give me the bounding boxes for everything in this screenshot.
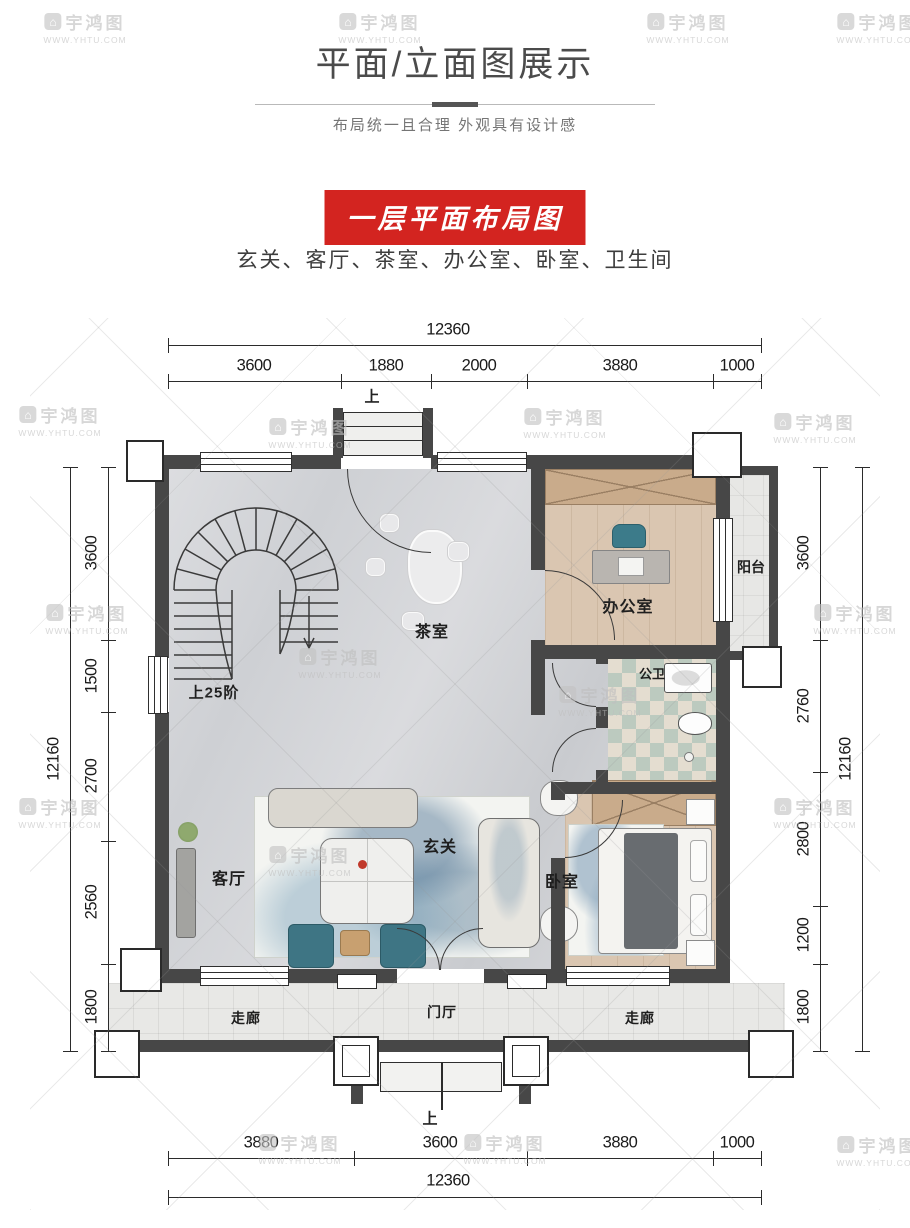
house-logo-icon: ⌂ — [464, 1134, 481, 1151]
page-subtitle: 布局统一且合理 外观具有设计感 — [0, 114, 910, 135]
dim-tick — [761, 374, 762, 389]
watermark-brand: 宇鸿图 — [545, 404, 605, 429]
pier-balcony-bottom — [742, 646, 782, 688]
house-logo-icon: ⌂ — [46, 604, 63, 621]
label-living-room: 客厅 — [212, 865, 246, 889]
house-logo-icon: ⌂ — [647, 13, 664, 30]
dim-tick — [63, 467, 78, 468]
house-logo-icon: ⌂ — [774, 798, 791, 815]
wall-bath-post-3 — [596, 770, 608, 782]
dim-tick — [354, 1151, 355, 1166]
dim-left-seg-2: 2700 — [83, 759, 102, 794]
coffee-table — [320, 838, 414, 924]
dim-tick — [813, 906, 828, 907]
wall-bath-post-2 — [596, 707, 608, 728]
tv-console — [176, 848, 196, 938]
dim-tick — [761, 1190, 762, 1205]
wall-left-lower — [155, 712, 169, 983]
wall-office-bottom — [531, 645, 730, 659]
pilaster-left — [337, 974, 377, 989]
dim-top-seg-0: 3600 — [237, 357, 272, 376]
label-bedroom: 卧室 — [545, 868, 579, 892]
dim-right-seg-1: 2760 — [795, 689, 814, 724]
dim-tick — [168, 374, 169, 389]
watermark: ⌂宇鸿图WWW.YHTU.COM — [18, 402, 101, 438]
dim-bottom-total: 12360 — [426, 1172, 469, 1191]
watermark: ⌂宇鸿图WWW.YHTU.COM — [836, 1132, 910, 1168]
dim-right-seg-4: 1800 — [795, 990, 814, 1025]
dim-tick — [813, 1051, 828, 1052]
dim-right-seg-3: 1200 — [795, 918, 814, 953]
watermark-brand: 宇鸿图 — [65, 9, 125, 34]
label-office: 办公室 — [602, 593, 653, 617]
dim-right-total: 12160 — [837, 737, 856, 780]
dim-bottom-seg-3: 1000 — [720, 1134, 755, 1153]
dim-tick — [101, 1051, 116, 1052]
bath-drain — [684, 752, 694, 762]
watermark: ⌂宇鸿图WWW.YHTU.COM — [463, 1130, 546, 1166]
dim-bottom-seg-2: 3880 — [603, 1134, 638, 1153]
dim-top-total-line — [168, 345, 761, 346]
dim-tick — [855, 1051, 870, 1052]
window-stairs-left — [148, 656, 168, 714]
wall-bath-bottom — [551, 782, 730, 794]
bed-blanket — [624, 833, 678, 949]
dim-bottom-total-line — [168, 1197, 761, 1198]
dim-left-seg-3: 2560 — [83, 885, 102, 920]
page-title: 平面/立面图展示 — [0, 36, 910, 87]
house-logo-icon: ⌂ — [814, 604, 831, 621]
watermark-brand: 宇鸿图 — [795, 794, 855, 819]
dim-right-seg-line — [820, 467, 821, 1051]
dim-right-seg-2: 2800 — [795, 822, 814, 857]
dim-tick — [713, 1151, 714, 1166]
dim-bottom-seg-1: 3600 — [423, 1134, 458, 1153]
sofa-bench-top — [268, 788, 418, 828]
dim-tick — [813, 467, 828, 468]
entry-column-left — [333, 1036, 379, 1086]
dim-tick — [101, 467, 116, 468]
pier-left-bottom — [120, 948, 162, 992]
up-label-top: 上 — [364, 386, 379, 407]
dim-top-total: 12360 — [426, 321, 469, 340]
wall-porch-edge — [108, 1040, 785, 1052]
coffee-table-kettle — [358, 860, 367, 869]
entry-step-wall-right — [423, 408, 433, 458]
watermark-brand: 宇鸿图 — [858, 9, 910, 34]
label-stairs: 上25阶 — [189, 682, 240, 703]
dim-left-seg-1: 1500 — [83, 659, 102, 694]
dim-tick — [168, 338, 169, 353]
side-table-small — [340, 930, 370, 956]
watermark-url: WWW.YHTU.COM — [18, 428, 101, 438]
entry-steps-top — [343, 412, 423, 456]
wall-left-upper — [155, 455, 169, 658]
dim-tick — [527, 374, 528, 389]
step-stub-right — [519, 1086, 531, 1104]
dim-top-seg-line — [168, 381, 761, 382]
dim-bottom-seg-line — [168, 1158, 761, 1159]
dim-top-seg-3: 3880 — [603, 357, 638, 376]
watermark-brand: 宇鸿图 — [858, 1132, 910, 1157]
dim-left-seg-line — [108, 467, 109, 1051]
tea-cushion-2 — [366, 558, 385, 576]
wall-bottom-4 — [668, 969, 730, 983]
window-living-front — [200, 966, 289, 986]
watermark-brand: 宇鸿图 — [795, 409, 855, 434]
watermark: ⌂宇鸿图WWW.YHTU.COM — [523, 404, 606, 440]
watermark-url: WWW.YHTU.COM — [18, 820, 101, 830]
wall-bottom-1 — [155, 969, 202, 983]
watermark-brand: 宇鸿图 — [485, 1130, 545, 1155]
dim-tick — [101, 964, 116, 965]
watermark: ⌂宇鸿图WWW.YHTU.COM — [18, 794, 101, 830]
nightstand-bottom — [686, 940, 715, 966]
wall-hall-stub — [531, 659, 545, 715]
dim-tick — [341, 374, 342, 389]
dim-left-total: 12160 — [45, 737, 64, 780]
house-logo-icon: ⌂ — [19, 406, 36, 423]
pier-top-left — [126, 440, 164, 482]
watermark: ⌂宇鸿图WWW.YHTU.COM — [773, 409, 856, 445]
dim-tick — [761, 1151, 762, 1166]
house-logo-icon: ⌂ — [837, 13, 854, 30]
watermark-brand: 宇鸿图 — [280, 1130, 340, 1155]
label-tea-room: 茶室 — [415, 618, 449, 642]
nightstand-top — [686, 799, 715, 825]
tea-cushion-3 — [448, 542, 469, 561]
up-label-bottom: 上 — [422, 1108, 437, 1129]
house-logo-icon: ⌂ — [19, 798, 36, 815]
bath-toilet — [678, 712, 712, 735]
office-cabinet — [545, 469, 716, 505]
watermark: ⌂宇鸿图WWW.YHTU.COM — [773, 794, 856, 830]
entry-column-right — [503, 1036, 549, 1086]
house-logo-icon: ⌂ — [269, 418, 286, 435]
pier-top-right — [692, 432, 742, 478]
label-hall: 玄关 — [423, 833, 457, 857]
house-logo-icon: ⌂ — [774, 413, 791, 430]
step-stub-left — [351, 1086, 363, 1104]
plant — [178, 822, 198, 842]
dim-left-total-line — [70, 467, 71, 1051]
page: 平面/立面图展示 布局统一且合理 外观具有设计感 一层平面布局图 玄关、客厅、茶… — [0, 0, 910, 1228]
room-list: 玄关、客厅、茶室、办公室、卧室、卫生间 — [0, 244, 910, 274]
window-top-tea — [437, 452, 527, 472]
watermark-url: WWW.YHTU.COM — [45, 626, 128, 636]
label-entry-hall: 门厅 — [427, 1002, 457, 1022]
bed-pillow-1 — [690, 840, 707, 882]
sofa-main-right — [478, 818, 540, 948]
house-logo-icon: ⌂ — [44, 13, 61, 30]
dim-tick — [168, 1190, 169, 1205]
office-chair — [612, 524, 646, 548]
dim-tick — [431, 374, 432, 389]
bath-sink — [664, 663, 712, 693]
dim-top-seg-4: 1000 — [720, 357, 755, 376]
wall-office-left-upper — [531, 469, 545, 570]
dim-tick — [63, 1051, 78, 1052]
watermark-brand: 宇鸿图 — [668, 9, 728, 34]
pier-porch-right — [748, 1030, 794, 1078]
watermark-brand: 宇鸿图 — [67, 600, 127, 625]
wall-bedroom-left-upper — [551, 782, 565, 800]
dim-tick — [761, 338, 762, 353]
watermark-url: WWW.YHTU.COM — [523, 430, 606, 440]
label-corridor-right: 走廊 — [625, 1008, 655, 1028]
dim-right-total-line — [862, 467, 863, 1051]
watermark: ⌂宇鸿图WWW.YHTU.COM — [813, 600, 896, 636]
dim-left-seg-4: 1800 — [83, 990, 102, 1025]
entry-axis-line — [441, 1062, 443, 1110]
dim-tick — [813, 772, 828, 773]
watermark-url: WWW.YHTU.COM — [813, 626, 896, 636]
dim-bottom-seg-0: 3880 — [244, 1134, 279, 1153]
window-top-left — [200, 452, 292, 472]
window-bedroom-front — [566, 966, 670, 986]
dim-tick — [527, 1151, 528, 1166]
entry-step-wall-left — [333, 408, 343, 458]
divider-accent — [432, 102, 478, 107]
pilaster-right — [507, 974, 547, 989]
dim-tick — [713, 374, 714, 389]
watermark-brand: 宇鸿图 — [835, 600, 895, 625]
pier-porch-left — [94, 1030, 140, 1078]
watermark-brand: 宇鸿图 — [360, 9, 420, 34]
watermark-url: WWW.YHTU.COM — [773, 435, 856, 445]
label-bathroom: 公卫 — [639, 664, 665, 683]
floor-badge: 一层平面布局图 — [325, 190, 586, 245]
watermark-url: WWW.YHTU.COM — [773, 820, 856, 830]
watermark-brand: 宇鸿图 — [40, 402, 100, 427]
dim-top-seg-1: 1880 — [369, 357, 404, 376]
wall-bath-post-1 — [596, 659, 608, 664]
office-laptop — [618, 557, 644, 576]
label-balcony: 阳台 — [737, 557, 765, 577]
dim-tick — [813, 640, 828, 641]
dim-tick — [101, 841, 116, 842]
house-logo-icon: ⌂ — [837, 1136, 854, 1153]
dim-tick — [813, 964, 828, 965]
label-corridor-left: 走廊 — [231, 1008, 261, 1028]
house-logo-icon: ⌂ — [339, 13, 356, 30]
house-logo-icon: ⌂ — [524, 408, 541, 425]
bed-pillow-2 — [690, 894, 707, 936]
dim-tick — [101, 712, 116, 713]
watermark-url: WWW.YHTU.COM — [836, 1158, 910, 1168]
armchair-1 — [288, 924, 334, 968]
window-office-balcony — [713, 518, 733, 622]
dim-top-seg-2: 2000 — [462, 357, 497, 376]
dim-tick — [168, 1151, 169, 1166]
watermark: ⌂宇鸿图WWW.YHTU.COM — [45, 600, 128, 636]
dim-left-seg-0: 3600 — [83, 536, 102, 571]
dim-tick — [101, 640, 116, 641]
wall-right-lower — [716, 620, 730, 983]
dim-tick — [855, 467, 870, 468]
dim-right-seg-0: 3600 — [795, 536, 814, 571]
